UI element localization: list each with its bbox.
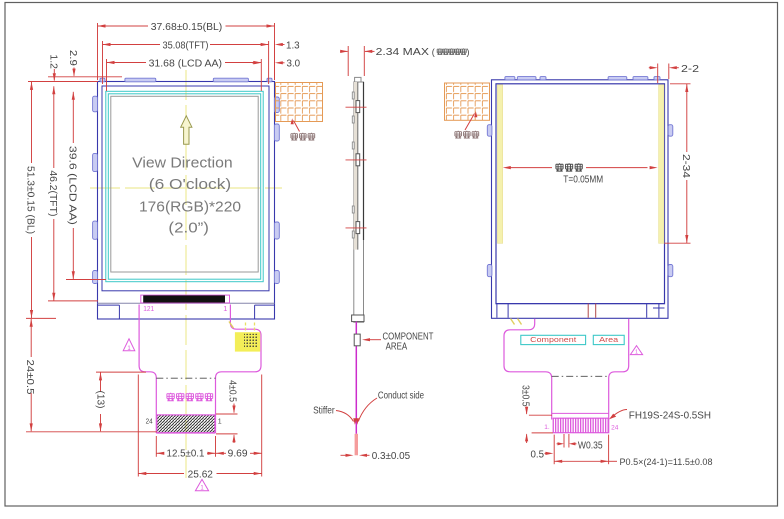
svg-text:3.0: 3.0 [287,59,301,70]
svg-text:2.34 MAX: 2.34 MAX [376,47,430,58]
svg-text:31.68 (LCD AA): 31.68 (LCD AA) [149,58,222,69]
svg-text:T=0.05MM: T=0.05MM [563,175,603,186]
svg-text:24: 24 [146,418,153,425]
svg-text:39.6 (LCD AA): 39.6 (LCD AA) [66,146,77,225]
svg-text:Area: Area [599,335,619,344]
svg-text:Conduct side: Conduct side [378,390,425,401]
svg-text:12.5±0.1: 12.5±0.1 [167,449,205,460]
svg-text:(: ( [432,47,435,57]
svg-text:46.2(TFT): 46.2(TFT) [47,170,58,216]
svg-text:24±0.5: 24±0.5 [24,360,35,395]
svg-text:3±0.5: 3±0.5 [520,385,531,407]
svg-text:0.5: 0.5 [531,449,545,460]
svg-text:1.: 1. [544,424,550,431]
svg-text:View Direction: View Direction [132,154,233,171]
svg-text:2.9: 2.9 [67,50,78,66]
svg-text:Component: Component [530,335,577,344]
svg-text:1: 1 [223,304,227,313]
svg-text:0.3±0.05: 0.3±0.05 [372,451,411,462]
svg-text:W0.35: W0.35 [578,440,603,451]
svg-text:35.08(TFT): 35.08(TFT) [163,40,209,51]
svg-text:1.2: 1.2 [47,54,58,69]
svg-text:176(RGB)*220: 176(RGB)*220 [139,198,241,215]
svg-text:2-2: 2-2 [681,64,700,75]
svg-text:2-34: 2-34 [680,154,691,179]
svg-text:P0.5×(24-1)=11.5±0.08: P0.5×(24-1)=11.5±0.08 [620,457,713,468]
svg-text:51.3±0.15 (BL): 51.3±0.15 (BL) [25,166,36,234]
svg-text:(2.0”): (2.0”) [168,219,209,236]
svg-text:1.3: 1.3 [286,41,300,52]
svg-text:Stiffer: Stiffer [313,406,335,417]
svg-text:(6 O'clock): (6 O'clock) [149,176,231,193]
svg-text:4±0.5: 4±0.5 [226,380,237,402]
svg-text:9.69: 9.69 [228,449,248,460]
svg-text:1: 1 [218,418,222,425]
svg-text:37.68±0.15(BL): 37.68±0.15(BL) [151,22,223,33]
svg-text:AREA: AREA [386,342,408,353]
svg-text:): ) [467,47,470,57]
svg-text:25.62: 25.62 [188,469,214,480]
svg-text:24: 24 [611,425,619,432]
svg-text:(13): (13) [95,391,106,409]
svg-text:1: 1 [635,350,638,356]
svg-text:121: 121 [143,304,154,313]
svg-text:FH19S-24S-0.5SH: FH19S-24S-0.5SH [629,409,711,421]
